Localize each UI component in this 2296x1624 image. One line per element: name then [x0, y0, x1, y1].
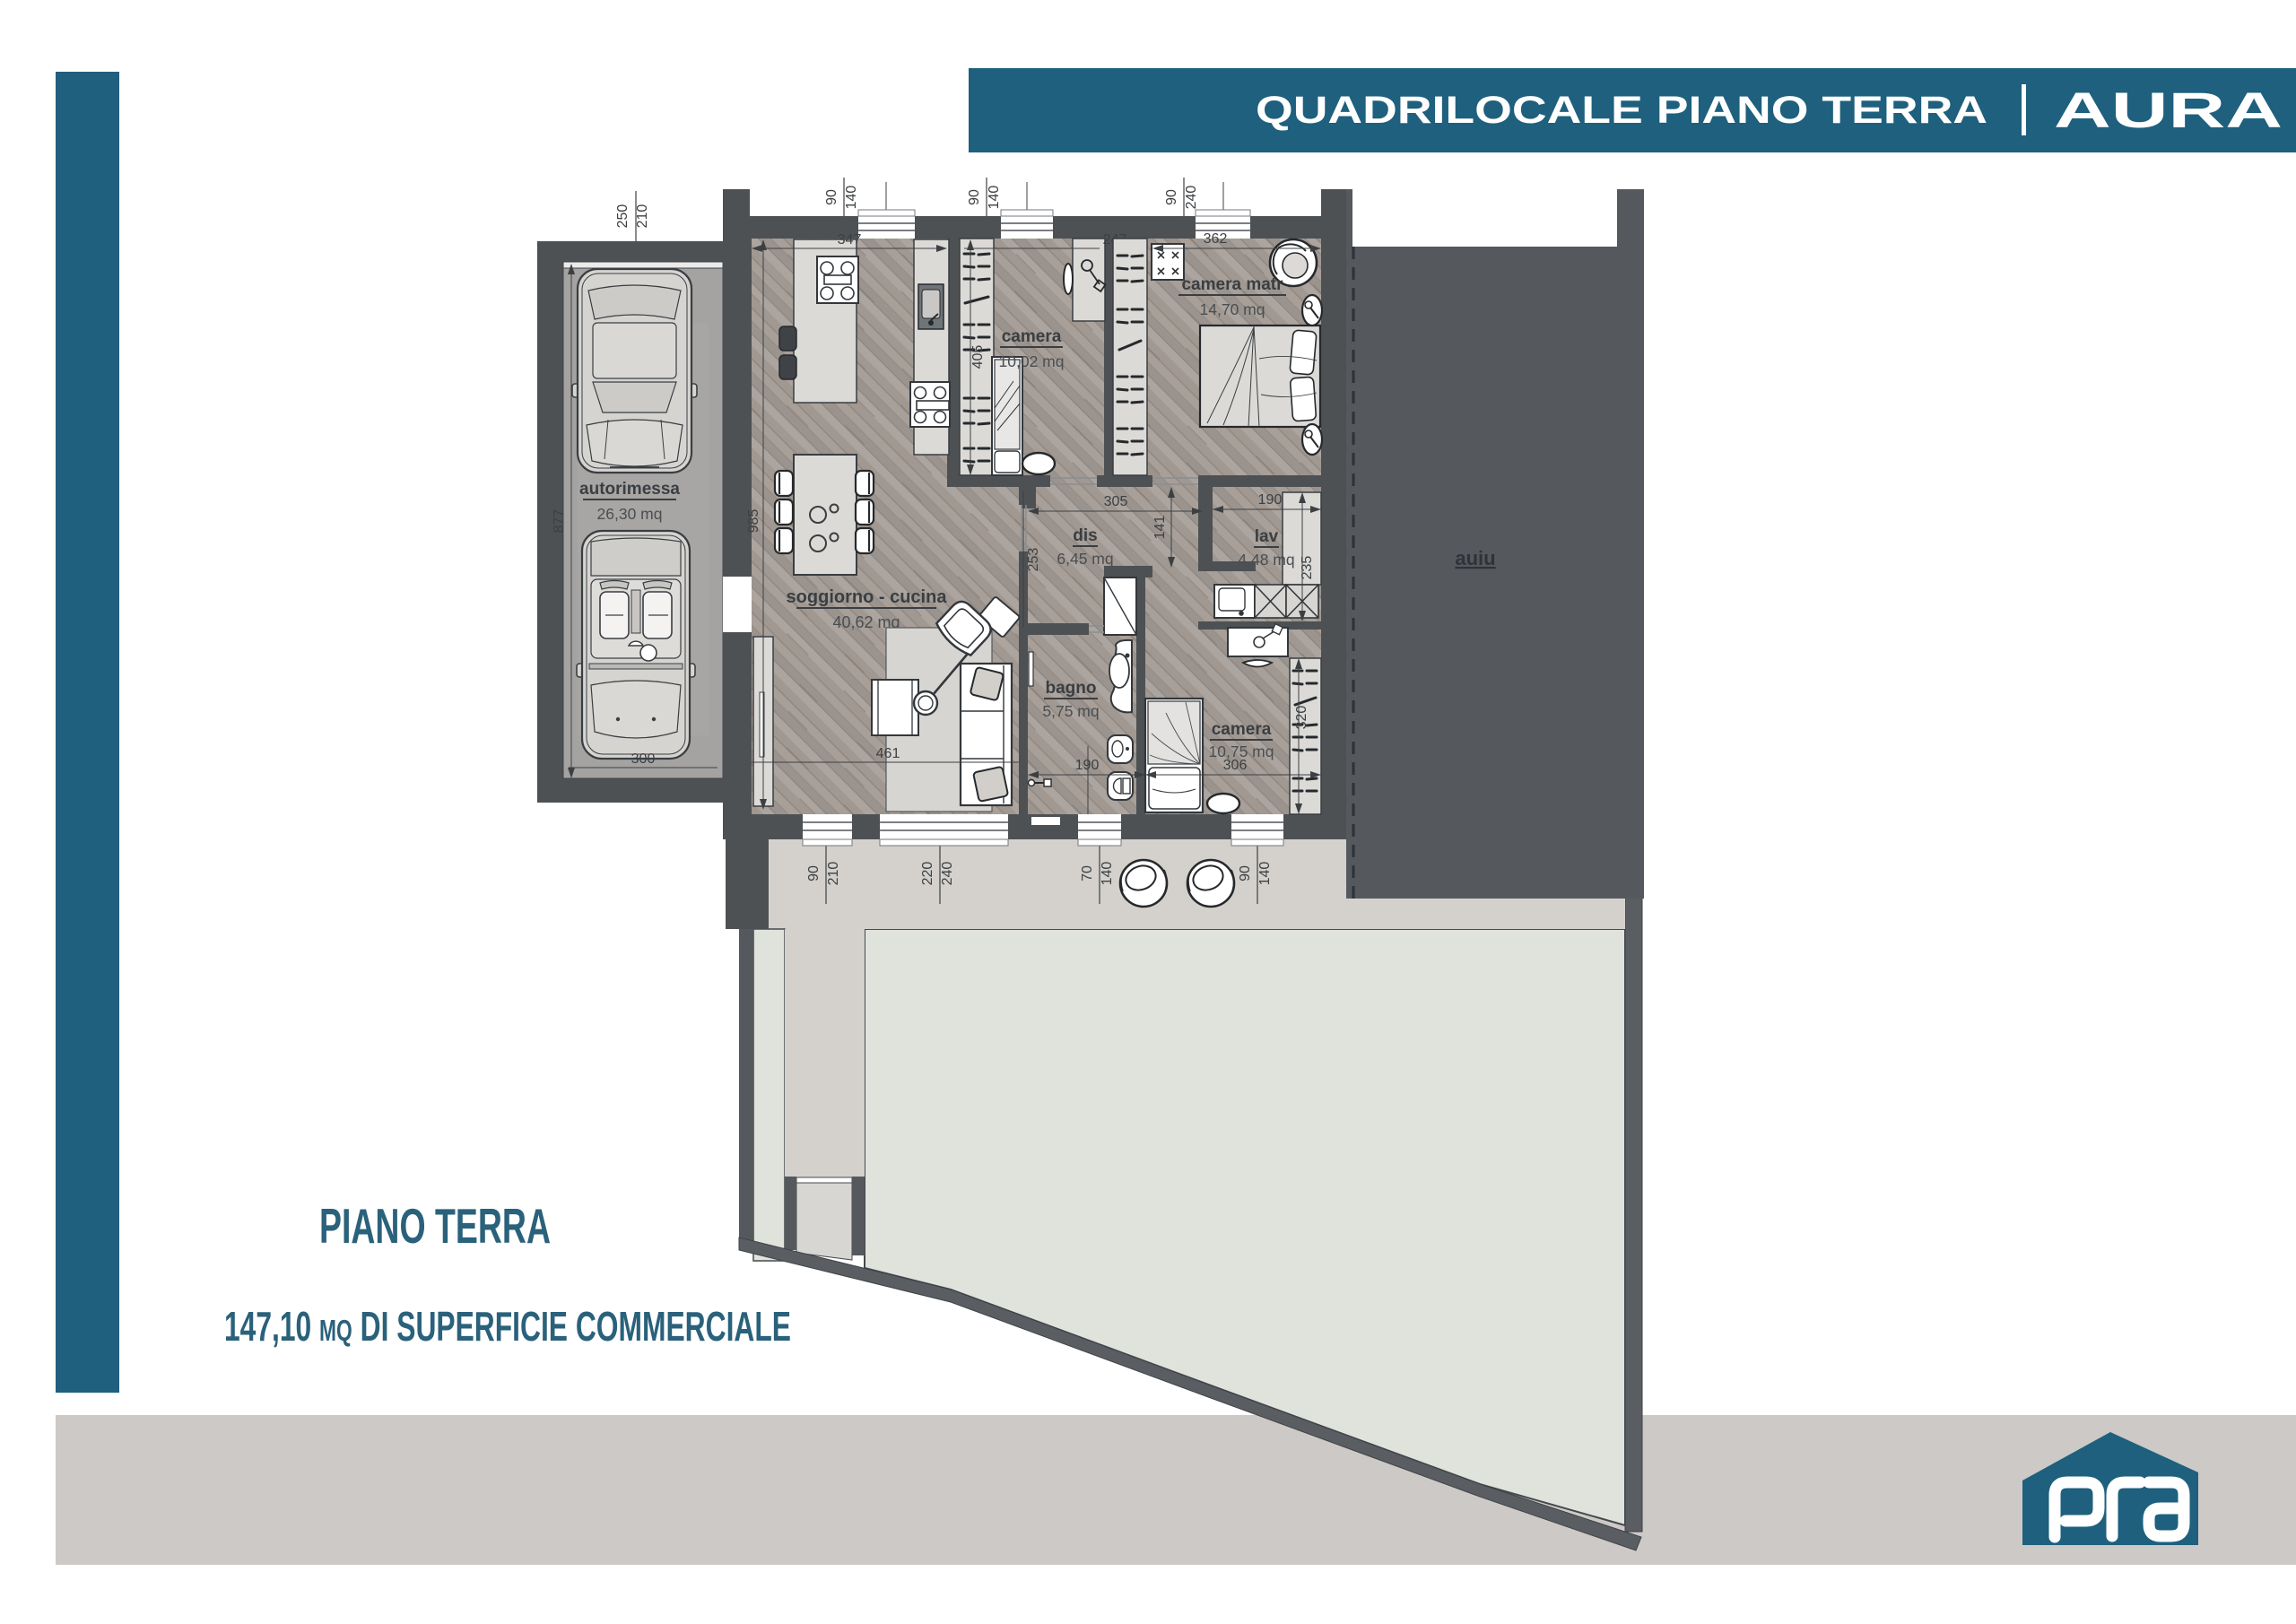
- svg-text:210: 210: [826, 862, 841, 886]
- svg-text:lav: lav: [1255, 527, 1279, 546]
- svg-text:210: 210: [635, 204, 650, 229]
- svg-text:405: 405: [970, 345, 986, 369]
- svg-text:877: 877: [552, 509, 567, 534]
- svg-text:220: 220: [920, 862, 935, 886]
- svg-text:5,75 mq: 5,75 mq: [1042, 702, 1099, 720]
- svg-text:140: 140: [844, 186, 859, 210]
- svg-text:362: 362: [1204, 231, 1228, 247]
- svg-text:147,10 MQ DI SUPERFICIE COMMER: 147,10 MQ DI SUPERFICIE COMMERCIALE: [224, 1303, 791, 1350]
- svg-text:camera: camera: [1212, 720, 1272, 739]
- svg-text:140: 140: [987, 186, 1002, 210]
- svg-text:AURA: AURA: [2054, 82, 2283, 138]
- svg-text:90: 90: [806, 865, 822, 881]
- svg-text:90: 90: [1164, 189, 1179, 205]
- svg-text:300: 300: [631, 751, 656, 767]
- svg-text:10,02 mq: 10,02 mq: [999, 352, 1065, 370]
- svg-text:14,70 mq: 14,70 mq: [1200, 300, 1265, 318]
- svg-text:soggiorno - cucina: soggiorno - cucina: [787, 587, 948, 607]
- svg-text:autorimessa: autorimessa: [579, 480, 680, 499]
- svg-text:26,30 mq: 26,30 mq: [597, 505, 663, 523]
- svg-text:90: 90: [824, 189, 839, 205]
- svg-text:camera matr: camera matr: [1181, 275, 1283, 294]
- svg-text:306: 306: [1223, 758, 1248, 773]
- svg-text:140: 140: [1100, 862, 1115, 886]
- svg-text:190: 190: [1075, 758, 1100, 773]
- svg-text:190: 190: [1258, 492, 1283, 508]
- svg-text:bagno: bagno: [1046, 679, 1097, 698]
- svg-text:70: 70: [1080, 865, 1095, 881]
- svg-text:140: 140: [1257, 862, 1273, 886]
- svg-text:250: 250: [615, 204, 631, 229]
- svg-text:305: 305: [1104, 494, 1128, 509]
- svg-text:90: 90: [1238, 865, 1253, 881]
- svg-text:90: 90: [967, 189, 982, 205]
- svg-text:235: 235: [1300, 556, 1315, 580]
- svg-text:dis: dis: [1073, 526, 1097, 545]
- svg-text:camera: camera: [1002, 327, 1062, 346]
- svg-text:985: 985: [746, 509, 761, 534]
- svg-text:PIANO TERRA: PIANO TERRA: [319, 1198, 551, 1254]
- svg-text:QUADRILOCALE PIANO TERRA: QUADRILOCALE PIANO TERRA: [1256, 89, 1987, 132]
- svg-text:141: 141: [1152, 516, 1168, 540]
- svg-text:320: 320: [1294, 706, 1309, 730]
- svg-text:6,45 mq: 6,45 mq: [1057, 550, 1113, 568]
- svg-text:240: 240: [1184, 186, 1199, 210]
- svg-text:253: 253: [1026, 548, 1041, 572]
- svg-text:461: 461: [876, 746, 900, 761]
- svg-text:4,48 mq: 4,48 mq: [1238, 551, 1294, 569]
- svg-text:347: 347: [838, 232, 862, 248]
- svg-text:240: 240: [940, 862, 955, 886]
- svg-text:auiu: auiu: [1455, 547, 1495, 569]
